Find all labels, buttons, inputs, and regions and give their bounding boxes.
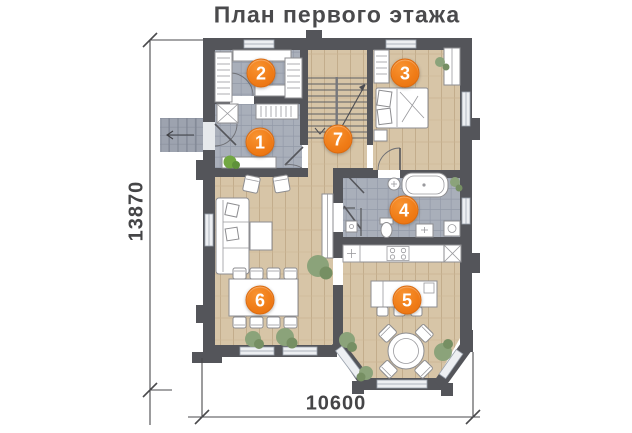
room-marker-1[interactable]: 1 [246, 128, 275, 157]
kitchen-counter [343, 245, 461, 262]
floor-plan-page: План первого этажа [0, 0, 632, 433]
pilaster-left-1 [196, 160, 204, 180]
room-marker-2[interactable]: 2 [247, 59, 276, 88]
hall-wardrobe [256, 104, 298, 119]
wall-right [460, 38, 472, 350]
toilet [380, 218, 393, 238]
wall-stairhall-bedroom [367, 50, 373, 145]
armchair-2 [273, 175, 291, 193]
pilaster-right-2 [472, 253, 480, 273]
wardrobe-left [215, 52, 232, 102]
bed-pillow-2 [377, 108, 392, 124]
window-right-1 [462, 92, 470, 126]
sofa-pillow-2 [225, 227, 239, 241]
window-top-2 [386, 40, 416, 48]
stool-1 [377, 307, 388, 316]
wall-bath-kitchen [336, 237, 460, 245]
pilaster-right-1 [472, 118, 480, 140]
bathroom-sink [416, 224, 433, 237]
sofa-pillow-1 [225, 203, 239, 217]
room-marker-5[interactable]: 5 [393, 286, 422, 315]
bedroom-wardrobe-left [374, 50, 389, 83]
wall-left-lower [203, 150, 215, 357]
room-marker-6[interactable]: 6 [246, 286, 275, 315]
front-door-opening [203, 122, 215, 150]
floor-plan-canvas [0, 0, 632, 433]
wall-living-kitchen-a [333, 178, 343, 203]
room-marker-3[interactable]: 3 [391, 59, 420, 88]
washing-machine [444, 221, 460, 236]
window-right-2 [462, 198, 470, 224]
wall-top [203, 38, 472, 50]
room-marker-4[interactable]: 4 [390, 196, 419, 225]
wall-left-upper [203, 38, 215, 122]
window-bay-bottom [377, 380, 427, 388]
nightstand [374, 130, 387, 141]
pilaster-left-2 [196, 305, 204, 323]
armchair-1 [242, 175, 260, 194]
pilaster-bay-corner-right [441, 383, 453, 396]
window-bottom-2 [283, 347, 317, 355]
bathtub-drain [422, 183, 425, 186]
window-top-1 [244, 40, 274, 48]
room-marker-7[interactable]: 7 [324, 125, 353, 154]
pilaster-bottom-left [192, 352, 222, 363]
coffee-table [250, 222, 272, 250]
dimension-width-label: 10600 [306, 393, 367, 416]
bed-pillow-1 [377, 90, 392, 107]
dimension-height-label: 13870 [126, 181, 149, 242]
window-left [205, 214, 213, 246]
pilaster-bay-right [460, 330, 473, 352]
pilaster-top [306, 30, 322, 39]
wall-hall-living [203, 168, 308, 177]
wall-bath-top [333, 168, 373, 178]
shower-drain [346, 221, 357, 232]
